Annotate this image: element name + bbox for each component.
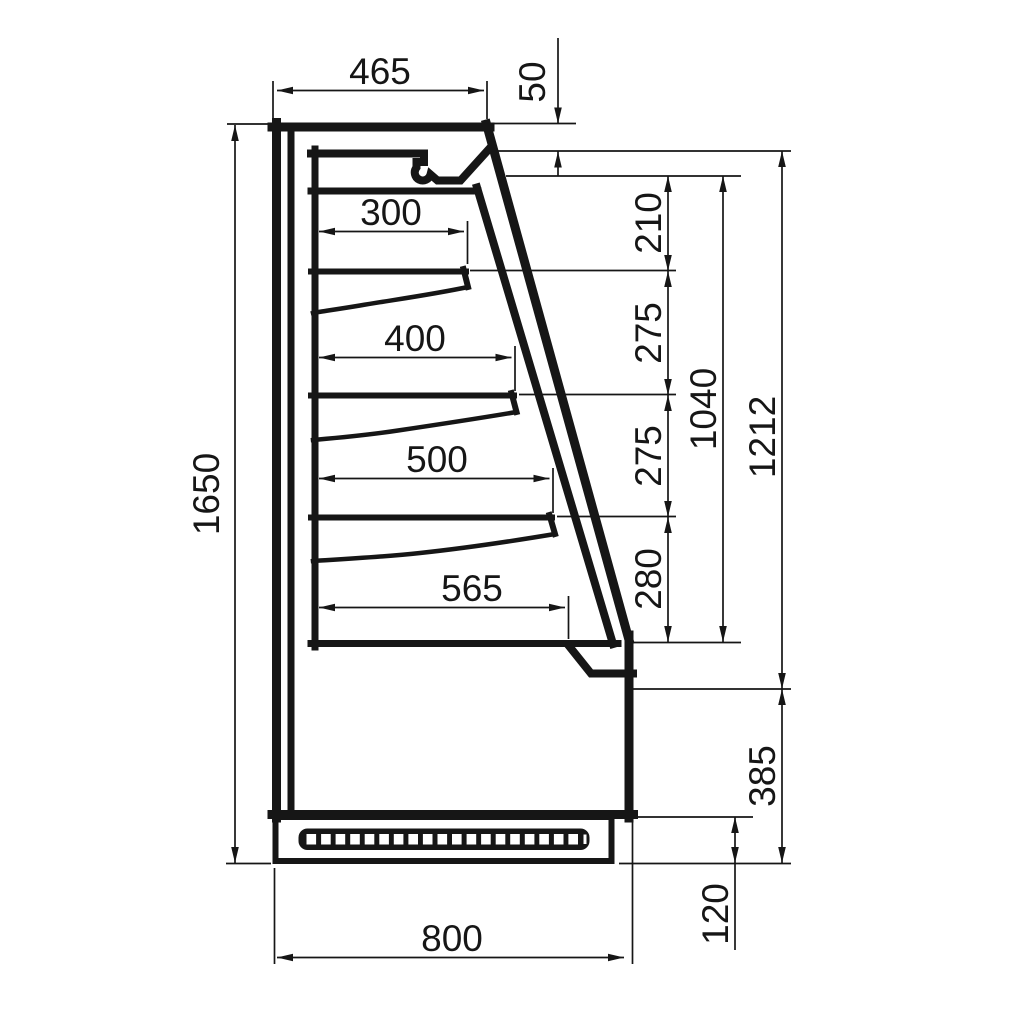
dim-300-label: 300 xyxy=(360,192,422,233)
dim-800-label: 800 xyxy=(421,918,483,959)
grille-slot xyxy=(365,834,375,845)
grille-slot xyxy=(394,834,404,845)
grille-slot xyxy=(510,834,520,845)
dim-275b-label: 275 xyxy=(628,425,669,487)
ventilation-grille xyxy=(299,829,590,851)
shelf-3-bracket-curve xyxy=(313,534,555,561)
front-glass-outer xyxy=(487,124,630,640)
technical-drawing-page: 465 50 1650 300 400 500 565 210 275 275 … xyxy=(0,0,1024,1024)
grille-slot xyxy=(336,834,346,845)
dim-1040-label: 1040 xyxy=(683,368,724,450)
shelf-1 xyxy=(311,269,468,313)
grille-slot xyxy=(438,834,448,845)
dim-210-label: 210 xyxy=(628,192,669,254)
front-step-profile xyxy=(569,646,633,674)
dim-400-label: 400 xyxy=(384,318,446,359)
cabinet-section-drawing: 465 50 1650 300 400 500 565 210 275 275 … xyxy=(0,0,1024,1024)
dim-280-label: 280 xyxy=(628,548,669,610)
cabinet-structure xyxy=(272,123,634,862)
dim-120-label: 120 xyxy=(695,883,736,945)
grille-slot xyxy=(525,834,535,845)
grille-slot xyxy=(467,834,477,845)
grille-slot xyxy=(568,834,578,845)
canopy-soffit-profile xyxy=(311,149,489,181)
grille-slot xyxy=(307,834,317,845)
dim-565-label: 565 xyxy=(441,568,503,609)
grille-slot xyxy=(452,834,462,845)
dim-50-label: 50 xyxy=(512,61,553,102)
dim-465-label: 465 xyxy=(349,51,411,92)
grille-slot-end xyxy=(584,835,587,845)
grille-slot xyxy=(554,834,564,845)
grille-slot xyxy=(481,834,491,845)
grille-slot xyxy=(408,834,418,845)
grille-slot xyxy=(350,834,360,845)
shelf-1-bracket-curve xyxy=(313,287,468,313)
grille-slot xyxy=(496,834,506,845)
grille-slot xyxy=(321,834,331,845)
dim-385-label: 385 xyxy=(742,745,783,807)
dim-1212-label: 1212 xyxy=(742,396,783,478)
dim-1650-label: 1650 xyxy=(186,453,227,535)
shelf-2 xyxy=(311,393,517,440)
grille-slot xyxy=(539,834,549,845)
dim-500-label: 500 xyxy=(406,439,468,480)
grille-slot xyxy=(379,834,389,845)
grille-slot xyxy=(423,834,433,845)
shelf-3 xyxy=(311,515,555,561)
dim-275a-label: 275 xyxy=(628,302,669,364)
shelf-2-bracket-curve xyxy=(313,412,517,440)
